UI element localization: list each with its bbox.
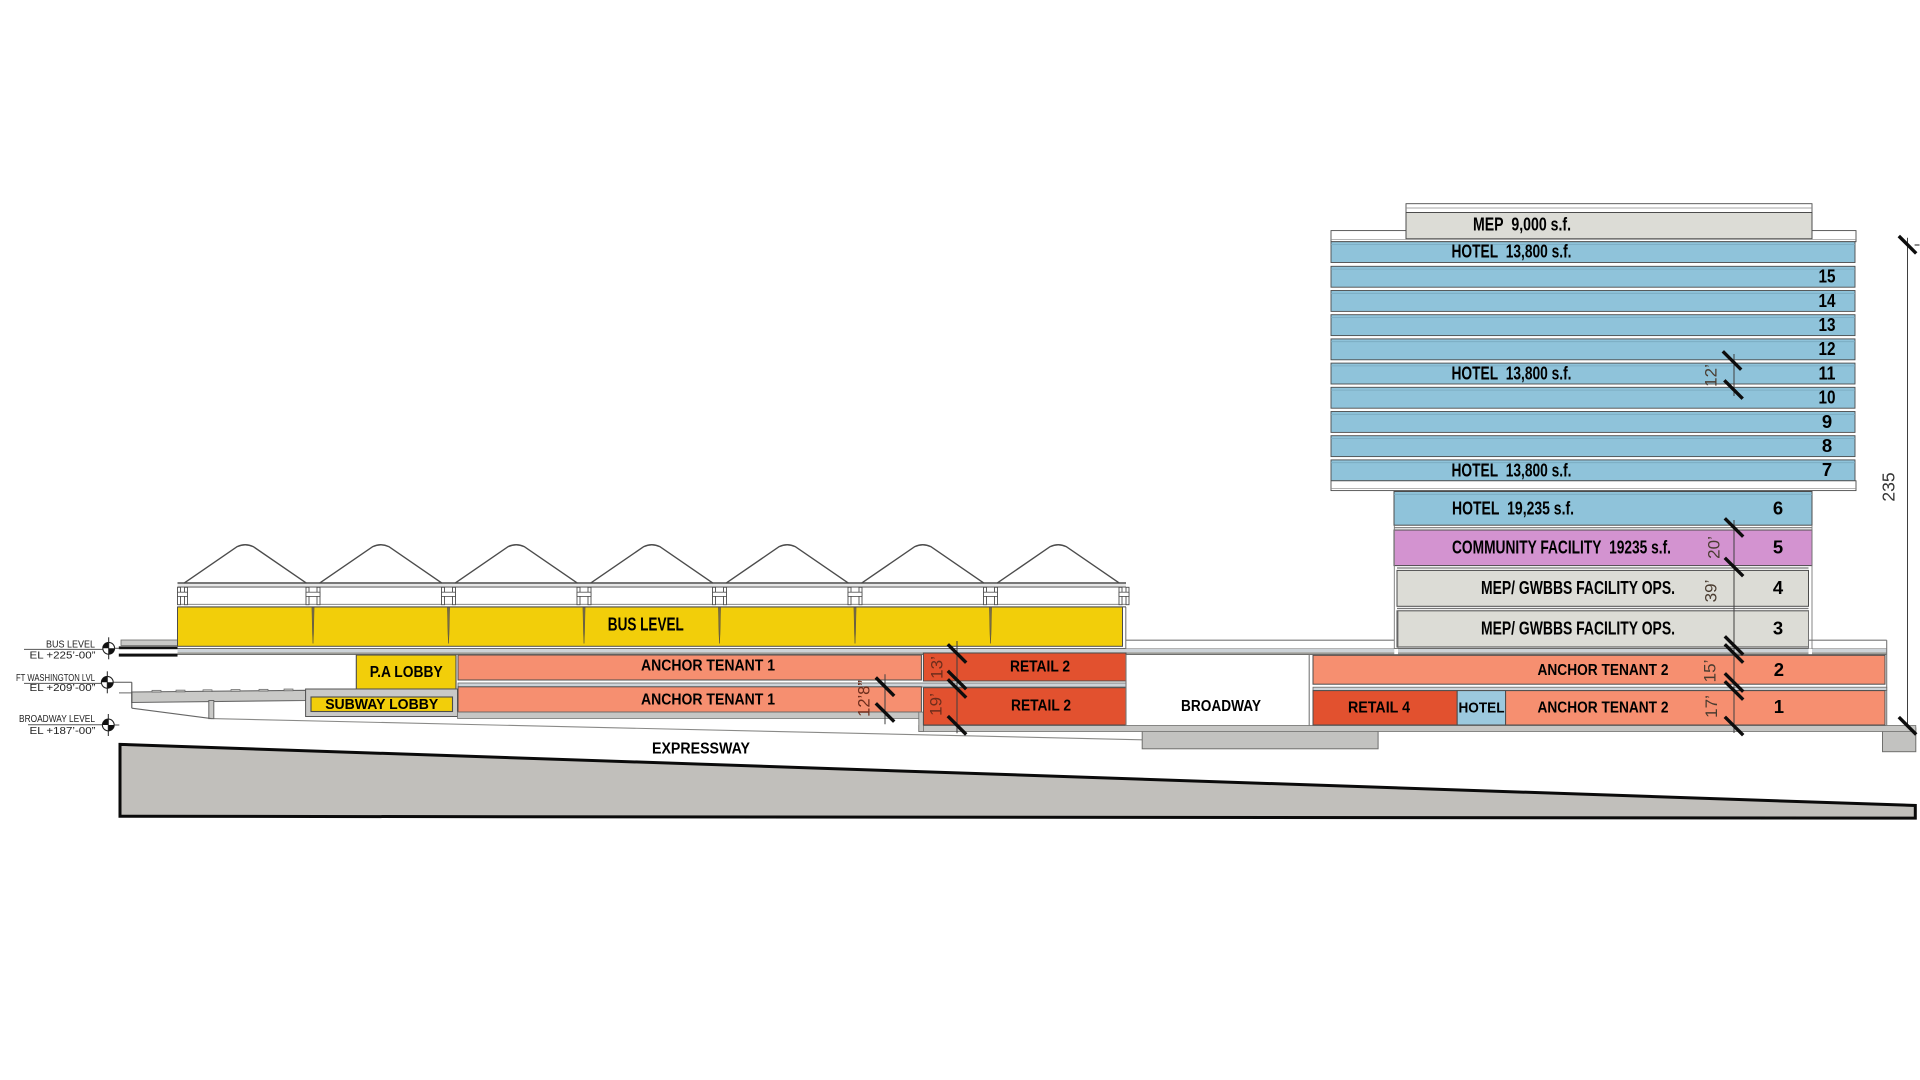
svg-text:EXPRESSWAY: EXPRESSWAY bbox=[652, 741, 751, 758]
svg-text:EL +187’-00”: EL +187’-00” bbox=[30, 726, 96, 737]
svg-text:ANCHOR TENANT 2: ANCHOR TENANT 2 bbox=[1538, 700, 1669, 717]
svg-text:13: 13 bbox=[1819, 314, 1836, 335]
svg-text:12’: 12’ bbox=[1702, 364, 1721, 387]
svg-text:HOTEL 13,800 s.f.: HOTEL 13,800 s.f. bbox=[1452, 242, 1572, 262]
svg-text:15’: 15’ bbox=[1701, 660, 1720, 683]
svg-text:SUBWAY LOBBY: SUBWAY LOBBY bbox=[325, 696, 438, 713]
svg-text:5: 5 bbox=[1773, 537, 1783, 558]
svg-text:10: 10 bbox=[1819, 387, 1836, 408]
svg-text:COMMUNITY FACILITY 19235 s.f.: COMMUNITY FACILITY 19235 s.f. bbox=[1452, 538, 1671, 558]
svg-text:39’: 39’ bbox=[1702, 580, 1721, 603]
svg-text:RETAIL 2: RETAIL 2 bbox=[1011, 698, 1071, 715]
svg-text:15: 15 bbox=[1819, 266, 1836, 287]
svg-text:8: 8 bbox=[1822, 435, 1832, 456]
svg-text:14: 14 bbox=[1819, 290, 1837, 311]
svg-text:19’: 19’ bbox=[927, 693, 946, 716]
svg-text:RETAIL 2: RETAIL 2 bbox=[1010, 659, 1070, 676]
svg-text:EL +225’-00”: EL +225’-00” bbox=[30, 651, 96, 662]
svg-text:3: 3 bbox=[1773, 618, 1783, 639]
svg-text:13’: 13’ bbox=[928, 656, 947, 679]
svg-text:HOTEL 13,800 s.f.: HOTEL 13,800 s.f. bbox=[1452, 364, 1572, 384]
svg-text:HOTEL 13,800 s.f.: HOTEL 13,800 s.f. bbox=[1452, 460, 1572, 480]
svg-text:MEP/ GWBBS FACILITY OPS.: MEP/ GWBBS FACILITY OPS. bbox=[1481, 578, 1675, 598]
svg-text:BUS LEVEL: BUS LEVEL bbox=[46, 640, 95, 651]
svg-text:HOTEL 19,235 s.f.: HOTEL 19,235 s.f. bbox=[1452, 499, 1574, 519]
svg-text:9: 9 bbox=[1822, 411, 1832, 432]
svg-text:MEP/ GWBBS FACILITY OPS.: MEP/ GWBBS FACILITY OPS. bbox=[1481, 619, 1675, 639]
svg-text:BUS LEVEL: BUS LEVEL bbox=[608, 614, 684, 635]
svg-text:ANCHOR TENANT 1: ANCHOR TENANT 1 bbox=[641, 692, 775, 709]
svg-text:RETAIL 4: RETAIL 4 bbox=[1348, 700, 1410, 717]
svg-text:EL +209’-00”: EL +209’-00” bbox=[30, 683, 96, 694]
svg-text:11: 11 bbox=[1819, 362, 1836, 383]
svg-text:P.A LOBBY: P.A LOBBY bbox=[370, 664, 444, 681]
svg-text:12: 12 bbox=[1819, 338, 1836, 359]
svg-text:MEP 9,000 s.f.: MEP 9,000 s.f. bbox=[1473, 215, 1571, 235]
svg-text:ANCHOR TENANT 1: ANCHOR TENANT 1 bbox=[641, 658, 775, 675]
svg-text:17’: 17’ bbox=[1702, 695, 1721, 718]
svg-text:ANCHOR TENANT 2: ANCHOR TENANT 2 bbox=[1538, 662, 1669, 679]
svg-text:1: 1 bbox=[1774, 696, 1784, 717]
svg-text:7: 7 bbox=[1822, 459, 1832, 480]
svg-text:4: 4 bbox=[1773, 577, 1784, 598]
svg-text:BROADWAY: BROADWAY bbox=[1181, 698, 1262, 715]
svg-text:12’8”: 12’8” bbox=[856, 680, 874, 717]
svg-text:HOTEL: HOTEL bbox=[1459, 700, 1505, 717]
svg-text:6: 6 bbox=[1773, 498, 1783, 519]
svg-text:235: 235 bbox=[1879, 472, 1899, 501]
svg-text:BROADWAY LEVEL: BROADWAY LEVEL bbox=[19, 714, 95, 725]
svg-text:2: 2 bbox=[1774, 659, 1784, 680]
svg-text:20’: 20’ bbox=[1705, 536, 1724, 559]
